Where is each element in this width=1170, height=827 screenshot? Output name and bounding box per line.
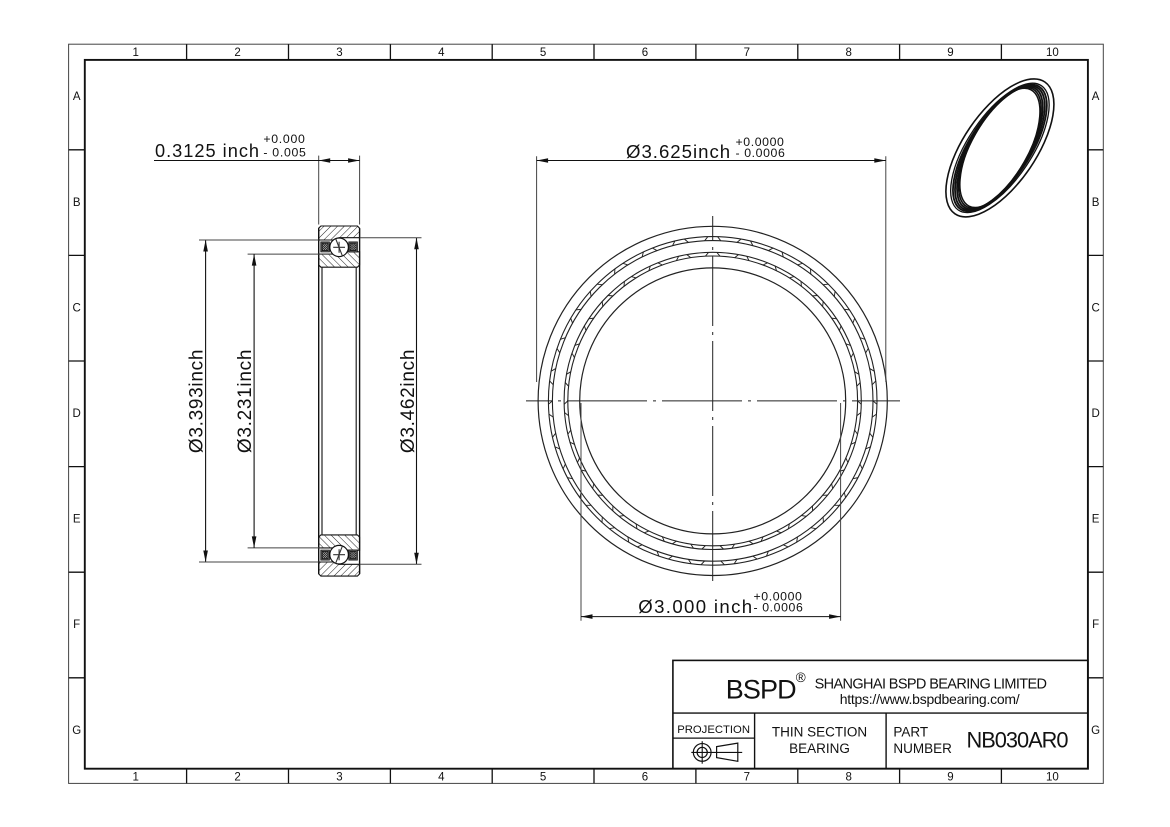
- svg-text:SHANGHAI BSPD BEARING LIMITED: SHANGHAI BSPD BEARING LIMITED: [815, 677, 1047, 693]
- svg-text:2: 2: [234, 772, 240, 784]
- svg-text:8: 8: [845, 772, 851, 784]
- svg-text:F: F: [1092, 619, 1099, 631]
- svg-text:C: C: [1091, 302, 1099, 314]
- svg-text:B: B: [1092, 197, 1100, 209]
- svg-text:6: 6: [642, 772, 648, 784]
- svg-text:C: C: [73, 302, 81, 314]
- svg-text:PART: PART: [893, 725, 928, 740]
- svg-text:0.3125 inch: 0.3125 inch: [155, 141, 260, 161]
- svg-text:1: 1: [132, 47, 138, 59]
- svg-text:10: 10: [1046, 772, 1059, 784]
- svg-text:BSPD: BSPD: [726, 675, 796, 705]
- svg-text:9: 9: [947, 47, 953, 59]
- svg-text:E: E: [1092, 514, 1100, 526]
- svg-text:10: 10: [1046, 47, 1059, 59]
- svg-text:®: ®: [796, 670, 806, 685]
- svg-text:9: 9: [947, 772, 953, 784]
- svg-text:7: 7: [744, 47, 750, 59]
- svg-text:Ø3.231inch: Ø3.231inch: [235, 349, 256, 453]
- svg-text:4: 4: [438, 47, 445, 59]
- svg-text:NUMBER: NUMBER: [893, 741, 952, 756]
- svg-text:Ø3.000 inch: Ø3.000 inch: [638, 596, 753, 617]
- svg-text:2: 2: [234, 47, 240, 59]
- svg-text:PROJECTION: PROJECTION: [677, 724, 750, 736]
- svg-text:3: 3: [336, 47, 342, 59]
- svg-text:4: 4: [438, 772, 445, 784]
- svg-text:A: A: [73, 91, 81, 103]
- svg-text:7: 7: [744, 772, 750, 784]
- svg-text:BEARING: BEARING: [789, 741, 850, 756]
- svg-text:A: A: [1092, 91, 1100, 103]
- svg-text:8: 8: [845, 47, 851, 59]
- svg-text:5: 5: [540, 772, 546, 784]
- svg-text:- 0.0006: - 0.0006: [754, 601, 804, 615]
- svg-text:G: G: [72, 725, 81, 737]
- svg-text:NB030AR0: NB030AR0: [967, 728, 1069, 753]
- svg-text:- 0.005: - 0.005: [263, 145, 306, 159]
- svg-text:5: 5: [540, 47, 546, 59]
- svg-text:B: B: [73, 197, 81, 209]
- svg-text:G: G: [1091, 725, 1100, 737]
- svg-text:3: 3: [336, 772, 342, 784]
- svg-text:- 0.0006: - 0.0006: [736, 146, 786, 160]
- svg-text:Ø3.625inch: Ø3.625inch: [626, 141, 731, 162]
- svg-text:1: 1: [132, 772, 138, 784]
- svg-text:D: D: [1091, 408, 1099, 420]
- svg-text:6: 6: [642, 47, 648, 59]
- svg-text:E: E: [73, 514, 81, 526]
- svg-text:+0.000: +0.000: [263, 132, 305, 146]
- svg-text:Ø3.393inch: Ø3.393inch: [187, 349, 208, 453]
- svg-text:F: F: [73, 619, 80, 631]
- svg-text:https://www.bspdbearing.com/: https://www.bspdbearing.com/: [840, 691, 1020, 707]
- svg-text:D: D: [73, 408, 81, 420]
- svg-text:Ø3.462inch: Ø3.462inch: [398, 349, 419, 453]
- svg-text:THIN SECTION: THIN SECTION: [772, 725, 867, 740]
